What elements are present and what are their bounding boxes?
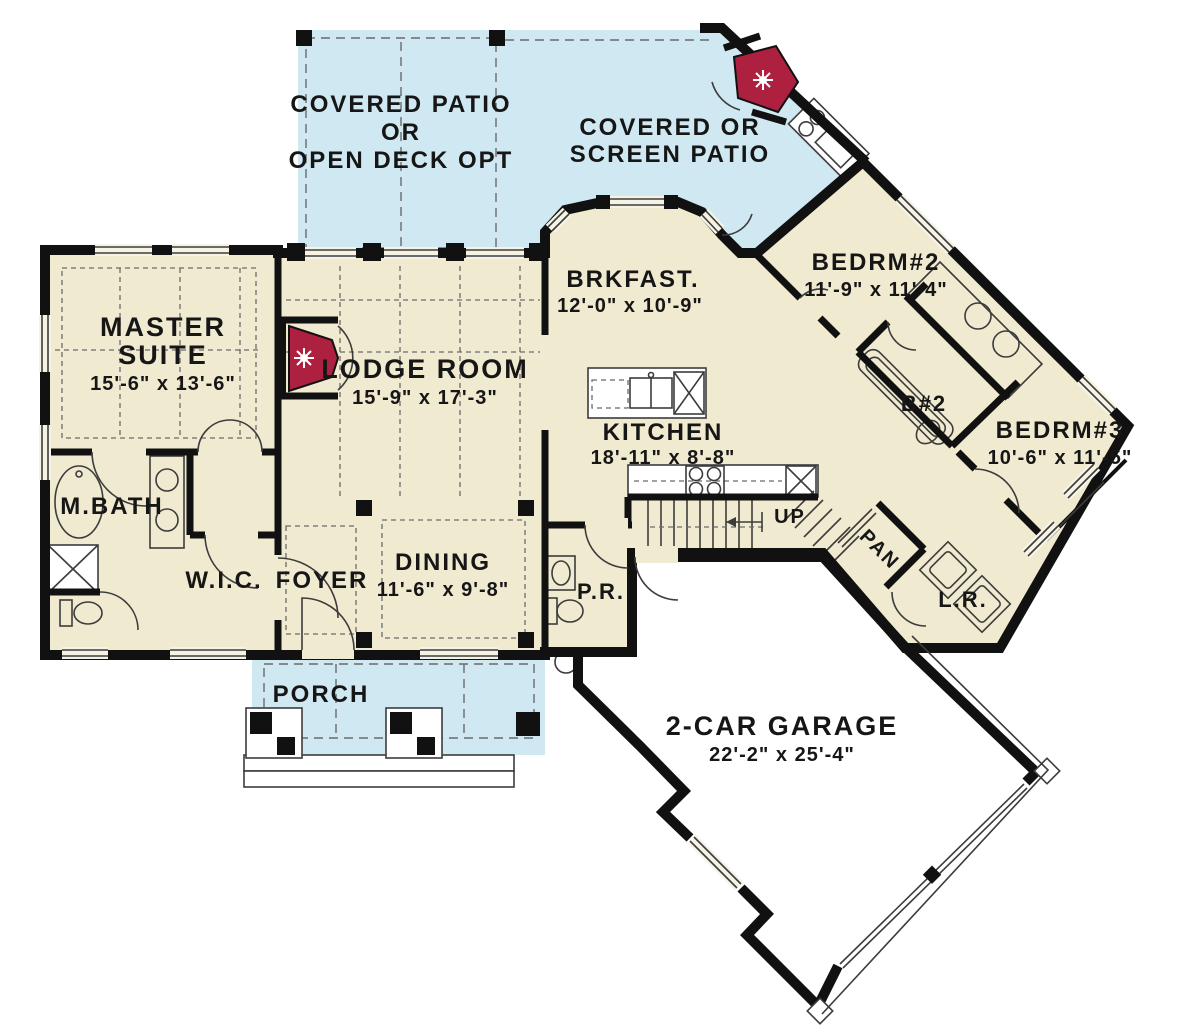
master-suite-label-2: SUITE xyxy=(118,340,208,370)
bath2-label: B#2 xyxy=(901,391,947,416)
floor-plan-page: COVERED PATIO OR OPEN DECK OPT COVERED O… xyxy=(0,0,1200,1034)
mbath-label: M.BATH xyxy=(60,493,164,520)
kitchen-dims: 18'-11" x 8'-8" xyxy=(591,447,736,469)
bedrm2-label: BEDRM#2 xyxy=(812,249,941,276)
porch-post-right xyxy=(516,712,540,736)
brkfast-dims: 12'-0" x 10'-9" xyxy=(557,295,703,317)
porch-pier-left xyxy=(246,708,302,758)
porch-label: PORCH xyxy=(273,681,370,708)
dining-label: DINING xyxy=(395,549,491,576)
porch-step-2 xyxy=(244,771,514,787)
brkfast-label: BRKFAST. xyxy=(566,266,699,293)
master-suite-dims: 15'-6" x 13'-6" xyxy=(90,373,236,395)
lodge-room-label: LODGE ROOM xyxy=(321,354,529,384)
laundry-label: L.R. xyxy=(938,587,988,612)
kitchen-island xyxy=(588,368,706,418)
lodge-room-dims: 15'-9" x 17'-3" xyxy=(352,387,498,409)
porch-pier-mid xyxy=(386,708,442,758)
powder-label: P.R. xyxy=(577,579,625,604)
stairs-up-label: UP xyxy=(774,506,806,528)
covered-patio-label-2: OR xyxy=(381,119,421,146)
bedrm3-label: BEDRM#3 xyxy=(996,417,1125,444)
covered-patio-label: COVERED PATIO xyxy=(290,91,511,118)
covered-patio-label-3: OPEN DECK OPT xyxy=(289,147,514,174)
kitchen-label: KITCHEN xyxy=(603,419,724,446)
garage-label: 2-CAR GARAGE xyxy=(666,711,899,741)
floor-plan-canvas: COVERED PATIO OR OPEN DECK OPT COVERED O… xyxy=(0,0,1200,1034)
screen-patio-label: COVERED OR xyxy=(579,114,760,141)
garage-dims: 22'-2" x 25'-4" xyxy=(709,744,855,766)
foyer-label: FOYER xyxy=(276,567,369,594)
master-suite-label: MASTER xyxy=(100,312,226,342)
kitchen-counter xyxy=(628,465,818,497)
bedrm3-dims: 10'-6" x 11'-5" xyxy=(988,447,1133,469)
fire-glow xyxy=(294,348,314,368)
dining-dims: 11'-6" x 9'-8" xyxy=(377,579,510,601)
screen-patio-label-2: SCREEN PATIO xyxy=(570,141,770,168)
fire-glow-2 xyxy=(753,70,773,90)
wic-label: W.I.C. xyxy=(185,567,262,594)
bedrm2-dims: 11'-9" x 11'-4" xyxy=(804,279,948,301)
